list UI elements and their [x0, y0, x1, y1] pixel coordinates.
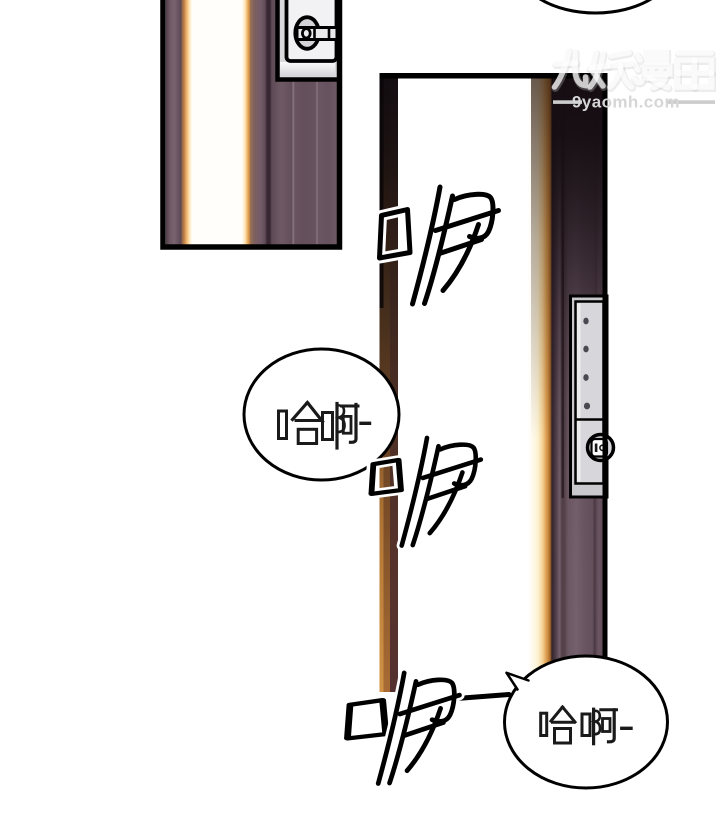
svg-text:9yaomh.com: 9yaomh.com [572, 93, 680, 112]
